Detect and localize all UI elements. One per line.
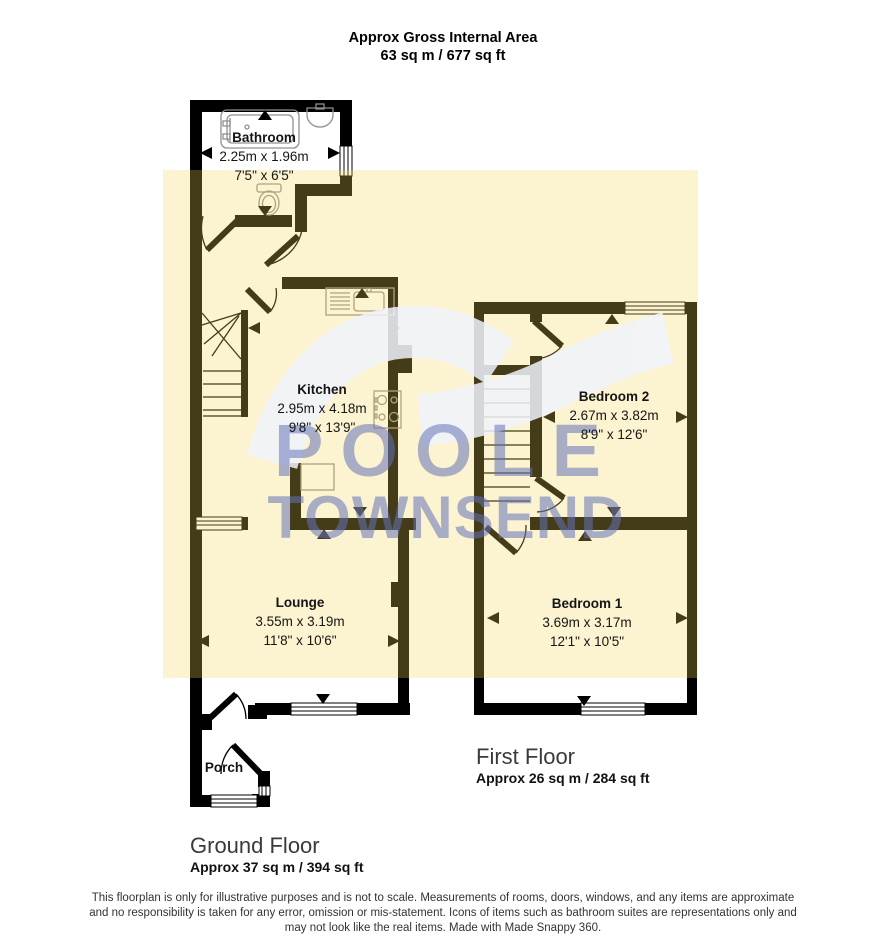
- room-dim-metric: 3.69m x 3.17m: [542, 613, 631, 632]
- room-dim-imperial: 9'8" x 13'9": [277, 418, 366, 437]
- room-dim-metric: 3.55m x 3.19m: [255, 612, 344, 631]
- room-label-porch: Porch: [205, 758, 243, 777]
- room-name: Bathroom: [219, 128, 308, 147]
- room-dim-metric: 2.25m x 1.96m: [219, 147, 308, 166]
- bathroom-window: [340, 146, 352, 176]
- room-name: Bedroom 1: [542, 594, 631, 613]
- room-label-lounge: Lounge 3.55m x 3.19m 11'8" x 10'6": [255, 593, 344, 650]
- room-dim-imperial: 11'8" x 10'6": [255, 631, 344, 650]
- room-dim-imperial: 8'9" x 12'6": [569, 425, 658, 444]
- ff-windows: [581, 302, 685, 715]
- room-label-bedroom2: Bedroom 2 2.67m x 3.82m 8'9" x 12'6": [569, 387, 658, 444]
- first-floor-area: Approx 26 sq m / 284 sq ft: [476, 770, 650, 786]
- gf-stairs-icon: [202, 313, 241, 416]
- room-dim-imperial: 7'5" x 6'5": [219, 166, 308, 185]
- porch-front-window: [211, 795, 257, 807]
- floor-plan-drawing: [0, 0, 886, 949]
- room-dim-metric: 2.67m x 3.82m: [569, 406, 658, 425]
- room-name: Porch: [205, 758, 243, 777]
- ff-walls: [474, 302, 697, 715]
- room-label-bedroom1: Bedroom 1 3.69m x 3.17m 12'1" x 10'5": [542, 594, 631, 651]
- first-floor-plan: [474, 302, 697, 715]
- title-line1: Approx Gross Internal Area: [0, 29, 886, 47]
- first-floor-label: First Floor: [476, 744, 575, 770]
- disclaimer-line1: This floorplan is only for illustrative …: [0, 891, 886, 906]
- title-line2: 63 sq m / 677 sq ft: [0, 47, 886, 65]
- disclaimer-text: This floorplan is only for illustrative …: [0, 891, 886, 936]
- lounge-window: [291, 703, 357, 715]
- cupboard-icon: [301, 464, 334, 490]
- room-name: Lounge: [255, 593, 344, 612]
- ground-floor-plan: [190, 100, 416, 807]
- disclaimer-line3: may not look like the real items. Made w…: [0, 921, 886, 936]
- gf-walls: [190, 100, 416, 807]
- hatch-window: [196, 517, 242, 530]
- ff-stairs-icon: [484, 389, 530, 501]
- bedroom2-window: [625, 302, 685, 314]
- ground-floor-area: Approx 37 sq m / 394 sq ft: [190, 859, 364, 875]
- toilet-icon: [257, 184, 281, 215]
- floorplan-page: POOLE TOWNSEND Approx Gross Internal Are…: [0, 0, 886, 949]
- basin-icon: [307, 104, 333, 127]
- page-title: Approx Gross Internal Area 63 sq m / 677…: [0, 29, 886, 65]
- disclaimer-line2: and no responsibility is taken for any e…: [0, 906, 886, 921]
- bedroom1-window: [581, 703, 645, 715]
- room-label-bathroom: Bathroom 2.25m x 1.96m 7'5" x 6'5": [219, 128, 308, 185]
- ground-floor-label: Ground Floor: [190, 833, 320, 859]
- room-name: Kitchen: [277, 380, 366, 399]
- room-dim-metric: 2.95m x 4.18m: [277, 399, 366, 418]
- porch-side-window: [259, 786, 270, 796]
- room-label-kitchen: Kitchen 2.95m x 4.18m 9'8" x 13'9": [277, 380, 366, 437]
- gf-doors: [202, 216, 302, 774]
- room-name: Bedroom 2: [569, 387, 658, 406]
- room-dim-imperial: 12'1" x 10'5": [542, 632, 631, 651]
